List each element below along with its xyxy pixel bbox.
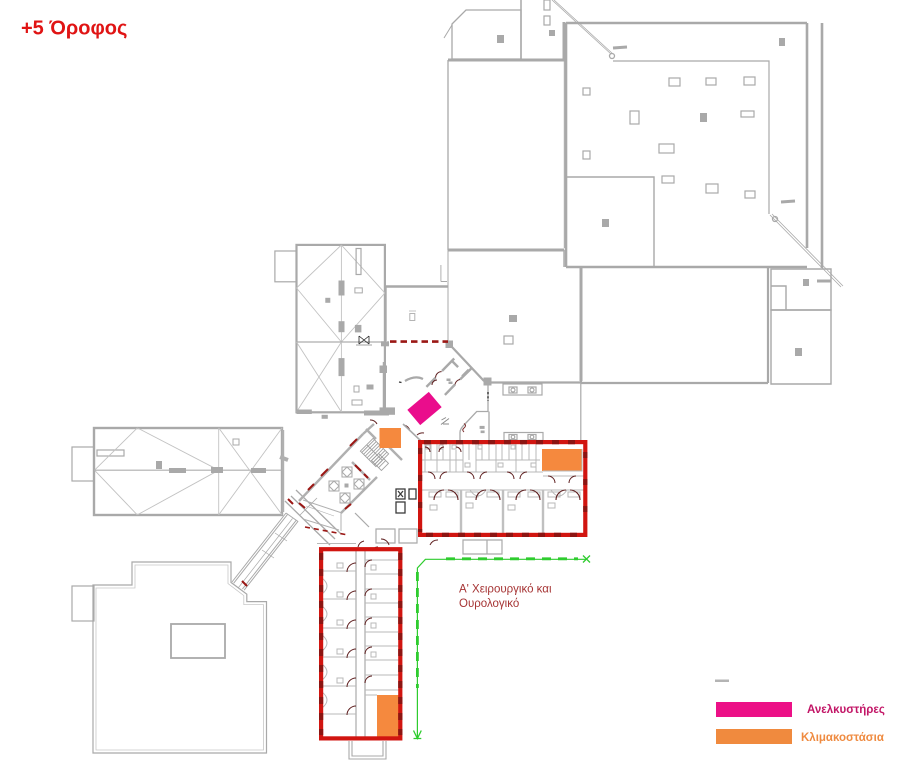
svg-text:+5 Όροφος: +5 Όροφος <box>21 18 127 40</box>
svg-text:Κλιμακοστάσια: Κλιμακοστάσια <box>801 732 884 744</box>
svg-text:Ανελκυστήρες: Ανελκυστήρες <box>807 704 885 716</box>
svg-text:Ουρολογικό: Ουρολογικό <box>459 598 519 610</box>
svg-text:Α' Χειρουργικό και: Α' Χειρουργικό και <box>459 584 552 596</box>
